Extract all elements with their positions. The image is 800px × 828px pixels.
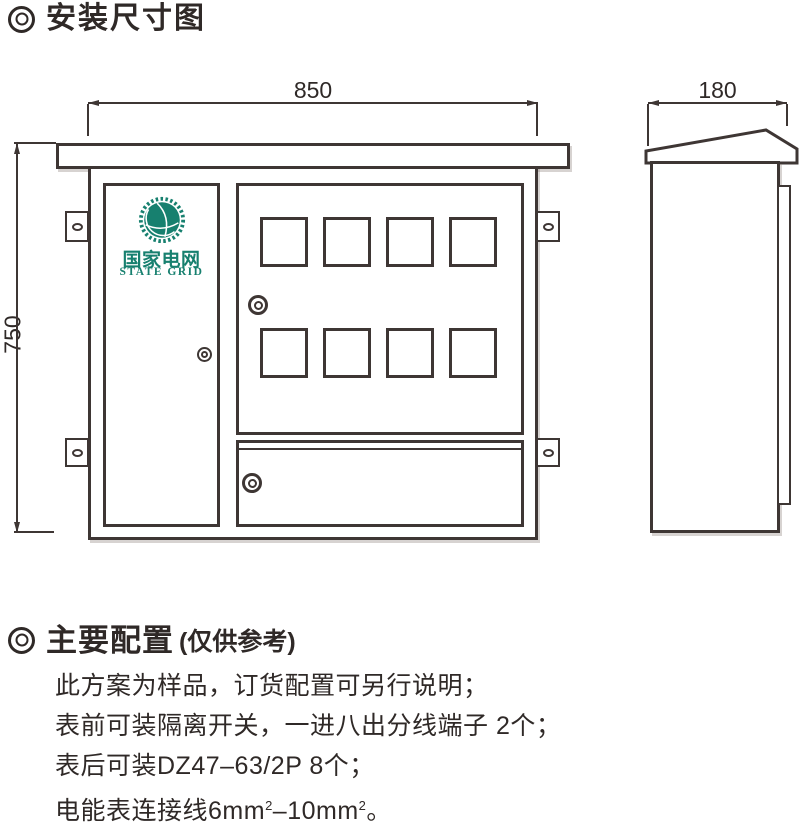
meter-window: [260, 217, 308, 267]
meter-window: [449, 217, 497, 267]
bottom-compartment: [236, 440, 524, 527]
dim-width-line: [88, 102, 538, 104]
dim-extension: [87, 104, 89, 136]
page: 安装尺寸图 850 180 750 国家电网 STATE GRID: [0, 0, 800, 828]
state-grid-emblem-icon: [137, 195, 187, 245]
config-line4-sup: 2: [265, 798, 273, 813]
lock-icon: [248, 295, 268, 315]
meter-window: [386, 217, 434, 267]
config-text: 此方案为样品，订货配置可另行说明； 表前可装隔离开关，一进八出分线端子 2个； …: [55, 666, 561, 828]
config-line4-part: 。: [366, 797, 392, 825]
config-line4-part: 电能表连接线6mm: [55, 797, 265, 825]
mounting-ear: [65, 211, 89, 242]
mounting-ear: [536, 211, 560, 242]
config-line: 电能表连接线6mm2–10mm2。: [55, 786, 561, 828]
config-line: 此方案为样品，订货配置可另行说明；: [55, 666, 561, 706]
double-circle-icon: [8, 6, 35, 33]
config-line4-part: –10mm: [273, 797, 359, 825]
dim-depth-line: [648, 102, 787, 104]
meter-window: [386, 328, 434, 378]
meter-window: [323, 217, 371, 267]
ear-hole-icon: [543, 449, 554, 457]
lock-inner: [201, 351, 208, 358]
config-heading-note: (仅供参考): [179, 622, 296, 658]
dim-extension: [786, 104, 788, 126]
double-circle-icon: [8, 627, 35, 654]
double-circle-inner: [15, 634, 28, 647]
dim-arrow-up: [14, 143, 20, 154]
mounting-ear: [536, 438, 560, 467]
dim-arrow-left: [648, 100, 659, 106]
dim-height-label: 750: [2, 305, 23, 365]
meter-window: [323, 328, 371, 378]
ear-hole-icon: [543, 223, 554, 231]
page-title-text: 安装尺寸图: [46, 4, 206, 34]
dim-depth-label: 180: [648, 79, 787, 102]
dim-width-label: 850: [88, 79, 538, 102]
ear-hole-icon: [72, 223, 83, 231]
dim-extension: [14, 142, 56, 144]
double-circle-inner: [15, 13, 28, 26]
ear-hole-icon: [72, 449, 83, 457]
page-title: 安装尺寸图: [8, 4, 206, 34]
config-line: 表后可装DZ47–63/2P 8个；: [55, 746, 561, 786]
lock-icon: [242, 473, 262, 493]
dim-extension: [536, 104, 538, 136]
config-section-title: 主要配置(仅供参考): [8, 622, 296, 658]
dim-height-line: [16, 143, 18, 533]
side-view-body: [650, 161, 780, 533]
lock-inner: [254, 301, 263, 310]
dim-arrow-left: [88, 100, 99, 106]
config-line: 表前可装隔离开关，一进八出分线端子 2个；: [55, 706, 561, 746]
dim-extension: [14, 531, 54, 533]
config-heading-text: 主要配置: [46, 625, 174, 656]
mounting-ear: [65, 438, 89, 467]
lock-inner: [248, 479, 257, 488]
logo-en-text: STATE GRID: [103, 266, 220, 278]
meter-window: [449, 328, 497, 378]
side-view-door-edge: [777, 185, 791, 505]
lock-icon: [197, 347, 212, 362]
compartment-rail-line: [239, 448, 521, 450]
meter-window: [260, 328, 308, 378]
